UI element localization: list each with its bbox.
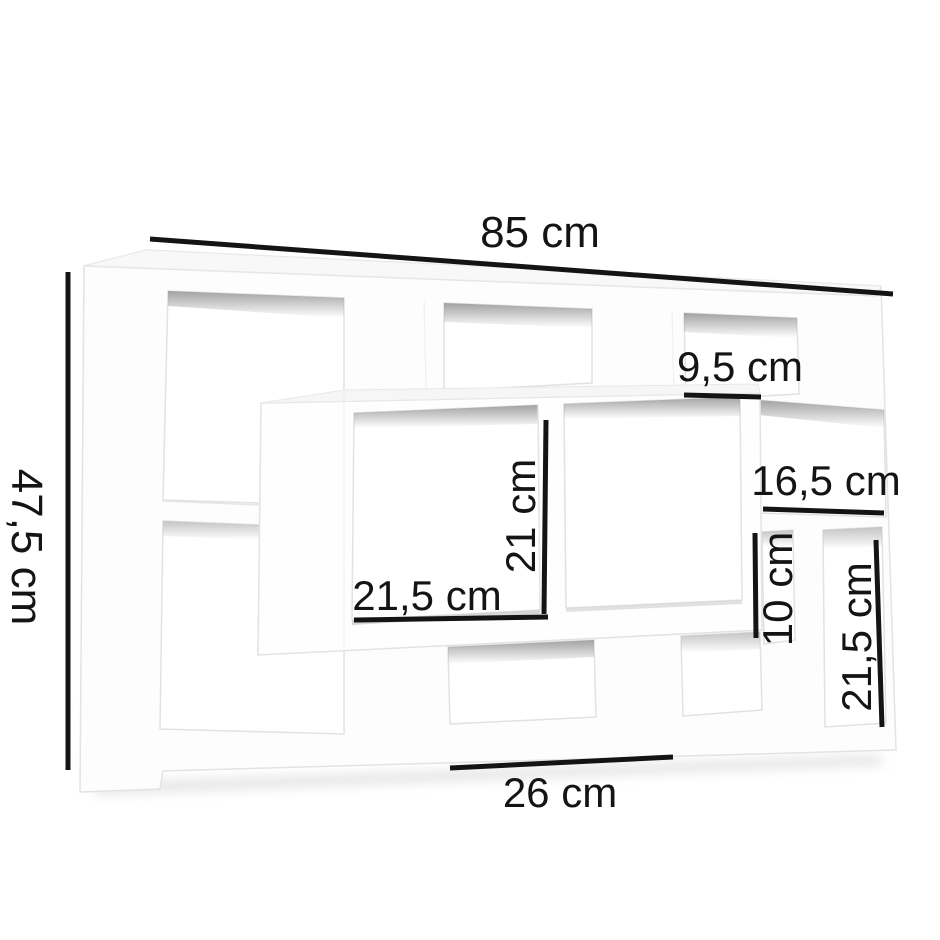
shelf-illustration — [80, 250, 896, 792]
dimension-width-label: 85 cm — [480, 208, 600, 257]
dimension-label: 10 cm — [754, 532, 801, 646]
dimension-label: 21 cm — [497, 459, 544, 573]
opening-shade — [823, 527, 882, 549]
dimension-bottom-right-opening: 21,5 cm — [833, 540, 882, 727]
dimension-label: 26 cm — [503, 769, 617, 816]
dimension-right-lower-opening: 10 cm — [754, 532, 801, 646]
center-box-cell-right — [564, 397, 742, 608]
dimension-label: 9,5 cm — [677, 343, 803, 390]
dimension-label: 21,5 cm — [352, 572, 501, 619]
shelf-diagram-canvas: 85 cm 47,5 cm 9,5 cm 16,5 cm 21 cm 21,5 … — [0, 0, 940, 940]
dimension-label: 21,5 cm — [833, 562, 880, 711]
dimension-top-right-opening: 9,5 cm — [677, 343, 803, 397]
dimension-line — [684, 395, 761, 397]
dimension-label: 16,5 cm — [751, 457, 900, 504]
dimension-height-label: 47,5 cm — [2, 469, 51, 626]
dimension-height: 47,5 cm — [2, 272, 68, 770]
product-dimension-diagram: 85 cm 47,5 cm 9,5 cm 16,5 cm 21 cm 21,5 … — [0, 0, 940, 940]
dimension-line — [544, 420, 546, 614]
